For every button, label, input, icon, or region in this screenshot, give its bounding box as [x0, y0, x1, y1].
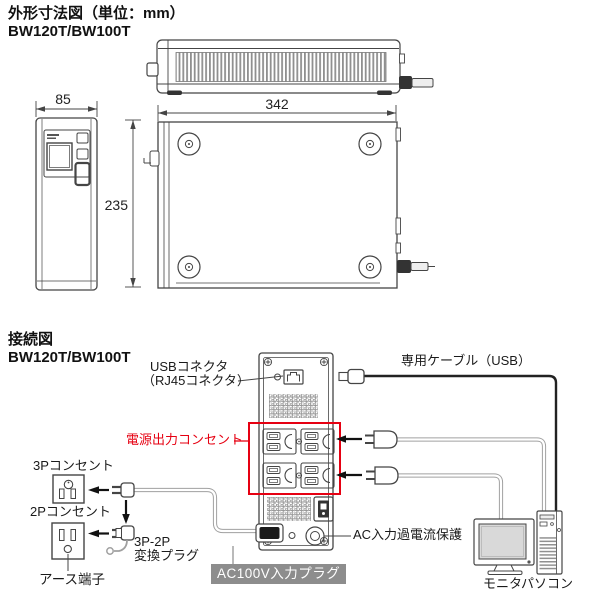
ac-input-plug-label: AC100V入力プラグ	[211, 564, 346, 584]
ac-input-cable	[133, 490, 258, 531]
monitor-label: モニタ	[483, 577, 522, 592]
dimension-figure	[36, 40, 435, 290]
top-view-drawing	[144, 122, 435, 288]
foot	[377, 91, 392, 96]
side-view-drawing	[147, 40, 433, 95]
width-dimension-value: 342	[256, 96, 298, 112]
vent-upper	[269, 394, 318, 418]
front-width-dimension-value: 85	[47, 91, 79, 107]
pc-label: パソコン	[521, 577, 573, 592]
wall-outlet-3p	[53, 475, 84, 503]
output-cable-lower	[397, 476, 501, 520]
foot	[167, 91, 182, 96]
overcurrent-label: AC入力過電流保護	[353, 528, 462, 543]
outlet-2p-label: 2Pコンセント	[30, 505, 111, 520]
dimension-model: BW120T/BW100T	[8, 23, 131, 40]
vent-grille	[176, 53, 386, 82]
wall-outlet-2p	[52, 523, 84, 559]
dedicated-cable-label: 専用ケーブル（USB）	[401, 354, 531, 369]
ac-inlet	[256, 524, 283, 542]
arrow-to-2p-outlet	[88, 530, 109, 538]
usb-plug	[339, 373, 348, 381]
earth-wire	[114, 540, 127, 551]
output-plug-lower	[366, 467, 398, 484]
mounting-clip	[150, 151, 159, 166]
earth-terminal-label: アース端子	[39, 572, 105, 588]
manual-page: 外形寸法図（単位：mm） BW120T/BW100T 342 85 235 接続…	[0, 0, 610, 610]
depth-dimension-value: 235	[94, 197, 128, 213]
pc-drawing	[537, 511, 562, 574]
arrow-to-3p-outlet	[88, 486, 109, 494]
outlet-3p-label: 3Pコンセント	[33, 459, 114, 474]
side-connector	[147, 63, 158, 76]
back-panel-drawing	[256, 353, 334, 550]
usb-connector-label-2: （RJ45コネクタ）	[142, 374, 250, 389]
vent-lower	[267, 497, 311, 521]
dimension-title: 外形寸法図（単位：mm）	[8, 5, 185, 22]
connection-figure	[52, 353, 562, 575]
rear-power-cord	[397, 260, 435, 273]
monitor-drawing	[474, 519, 534, 575]
display-screen	[47, 143, 72, 170]
adapter-plug-drawing	[107, 526, 134, 554]
arrow-3p-to-2p	[122, 500, 130, 524]
power-outlet-label: 電源出力コンセント	[126, 433, 243, 448]
side-power-plug	[399, 76, 433, 89]
adapter-plug-label-2: 変換プラグ	[134, 549, 199, 564]
connection-model: BW120T/BW100T	[8, 349, 131, 366]
connection-title: 接続図	[8, 331, 53, 348]
output-plug-upper	[365, 431, 397, 448]
ac-input-plug-drawing	[112, 483, 134, 497]
front-view-drawing	[36, 118, 97, 290]
